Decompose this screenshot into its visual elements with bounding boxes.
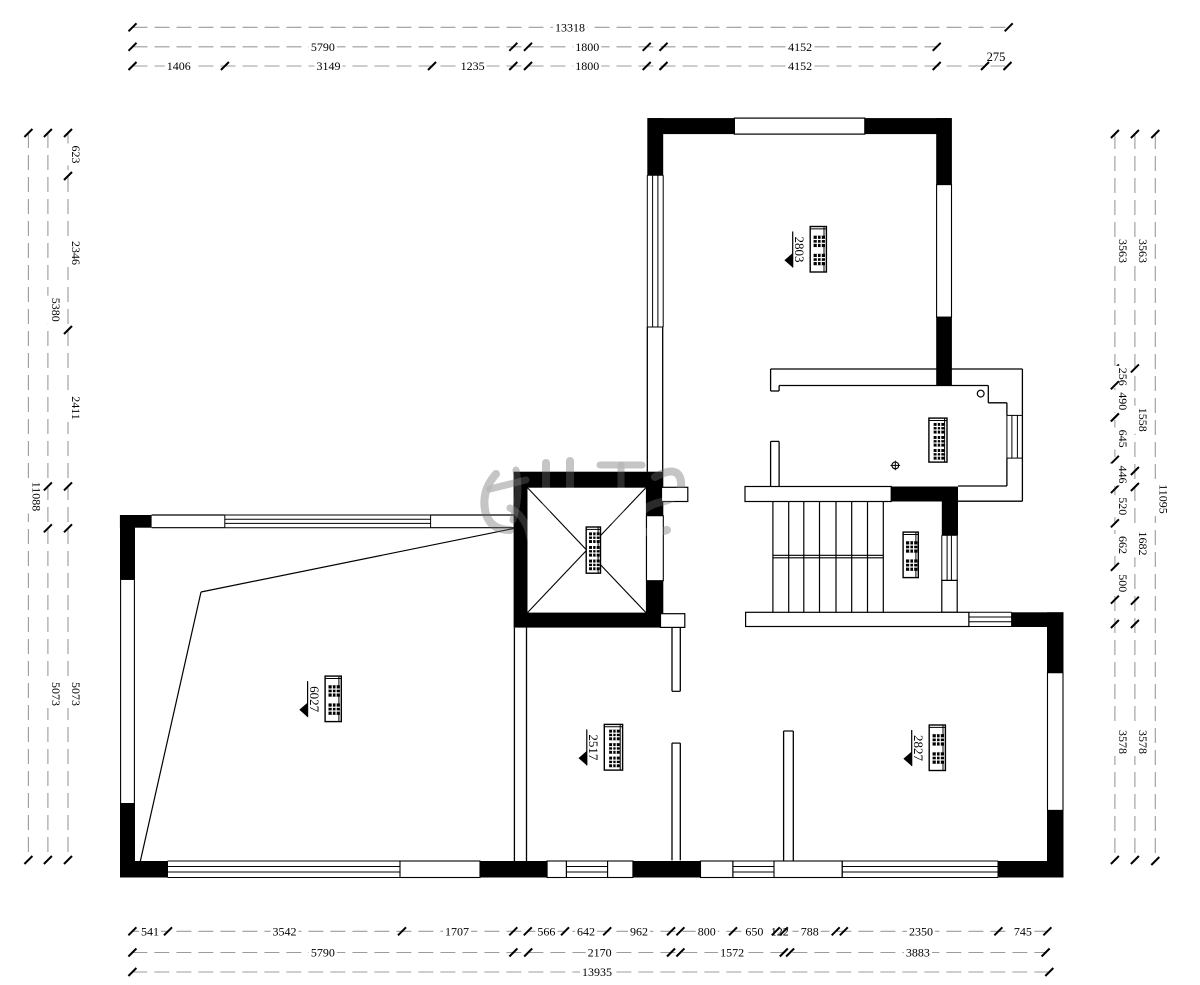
svg-text:446: 446 [1116,466,1130,484]
svg-text:800: 800 [698,924,716,938]
svg-text:6027: 6027 [307,686,322,713]
svg-text:2517: 2517 [586,734,601,761]
svg-text:11088: 11088 [29,482,43,512]
svg-text:566: 566 [537,924,555,938]
svg-text:122: 122 [771,924,789,938]
svg-text:962: 962 [630,924,648,938]
svg-text:4152: 4152 [788,59,812,73]
svg-text:642: 642 [577,924,595,938]
svg-text:3149: 3149 [317,59,341,73]
svg-text:275: 275 [987,50,1006,64]
svg-text:13318: 13318 [555,20,585,34]
svg-text:5073: 5073 [49,682,63,706]
svg-text:3563: 3563 [1116,239,1130,263]
svg-text:490: 490 [1116,392,1130,410]
svg-text:2827: 2827 [911,735,926,762]
svg-text:2170: 2170 [588,946,612,960]
svg-text:5380: 5380 [49,298,63,322]
svg-text:5790: 5790 [311,946,335,960]
svg-text:5790: 5790 [311,40,335,54]
svg-text:623: 623 [69,146,83,164]
svg-text:4152: 4152 [788,40,812,54]
svg-text:2803: 2803 [792,237,807,263]
svg-text:500: 500 [1116,574,1130,592]
svg-text:2350: 2350 [909,924,933,938]
svg-text:650: 650 [745,924,763,938]
svg-text:1235: 1235 [461,59,485,73]
svg-text:11095: 11095 [1156,484,1170,514]
svg-text:645: 645 [1116,430,1130,448]
svg-text:662: 662 [1116,536,1130,554]
svg-text:745: 745 [1014,924,1032,938]
svg-text:3563: 3563 [1136,239,1150,263]
svg-text:1800: 1800 [575,40,599,54]
svg-text:1572: 1572 [720,946,744,960]
svg-text:3578: 3578 [1136,730,1150,754]
svg-text:788: 788 [801,924,819,938]
svg-text:1800: 1800 [575,59,599,73]
svg-text:13935: 13935 [582,965,612,979]
svg-text:2346: 2346 [69,241,83,265]
svg-text:1682: 1682 [1136,532,1150,556]
svg-text:5073: 5073 [69,682,83,706]
svg-text:3883: 3883 [906,946,930,960]
svg-text:3578: 3578 [1116,730,1130,754]
svg-text:3542: 3542 [273,924,297,938]
svg-text:520: 520 [1116,497,1130,515]
svg-text:1406: 1406 [167,59,191,73]
svg-text:1707: 1707 [445,924,469,938]
svg-text:2411: 2411 [69,396,83,420]
svg-text:1558: 1558 [1136,408,1150,432]
svg-text:541: 541 [141,924,159,938]
